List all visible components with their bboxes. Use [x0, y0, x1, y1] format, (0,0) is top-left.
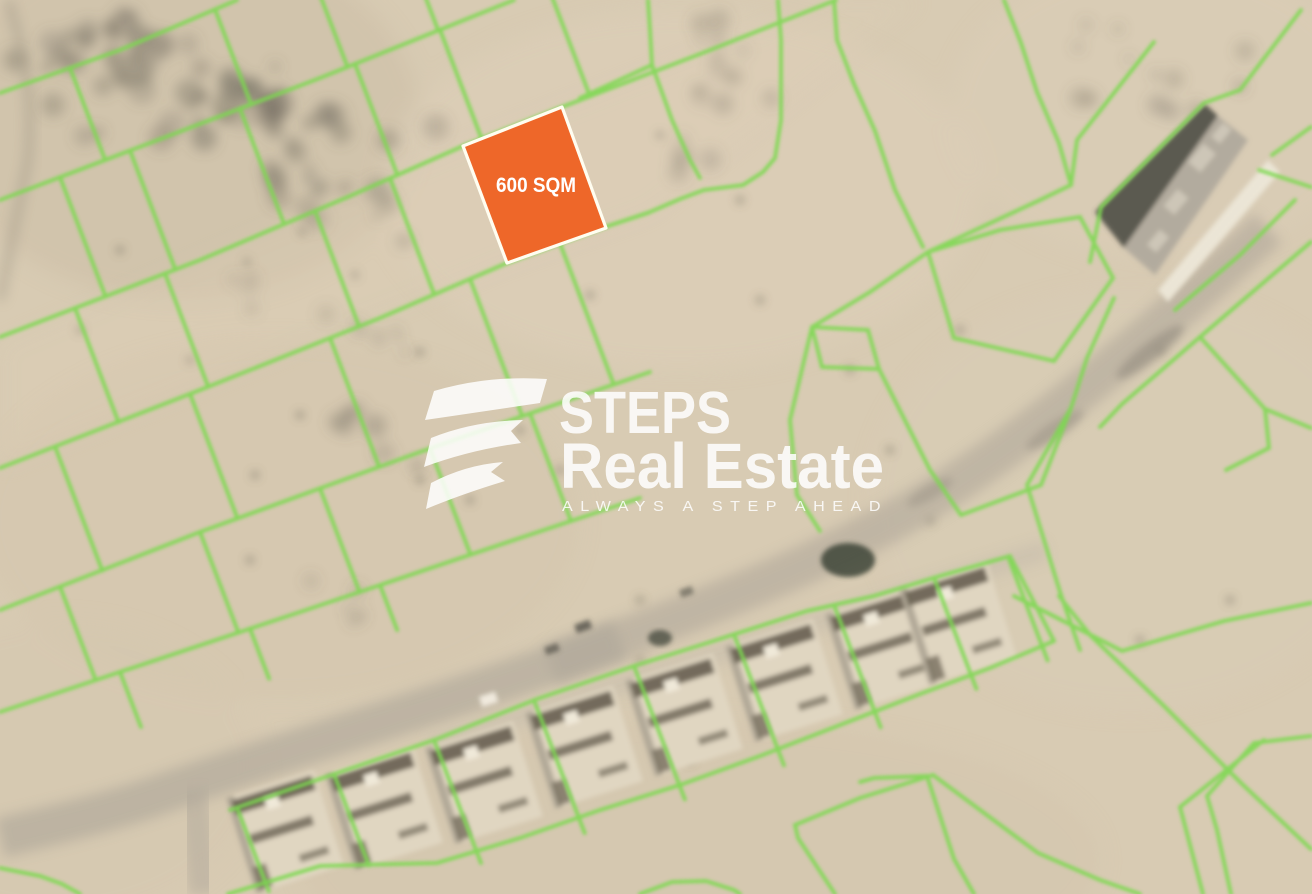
svg-text:Real Estate: Real Estate: [560, 430, 884, 502]
svg-text:600 SQM: 600 SQM: [496, 174, 576, 197]
svg-text:ALWAYS A STEP AHEAD: ALWAYS A STEP AHEAD: [562, 498, 888, 515]
